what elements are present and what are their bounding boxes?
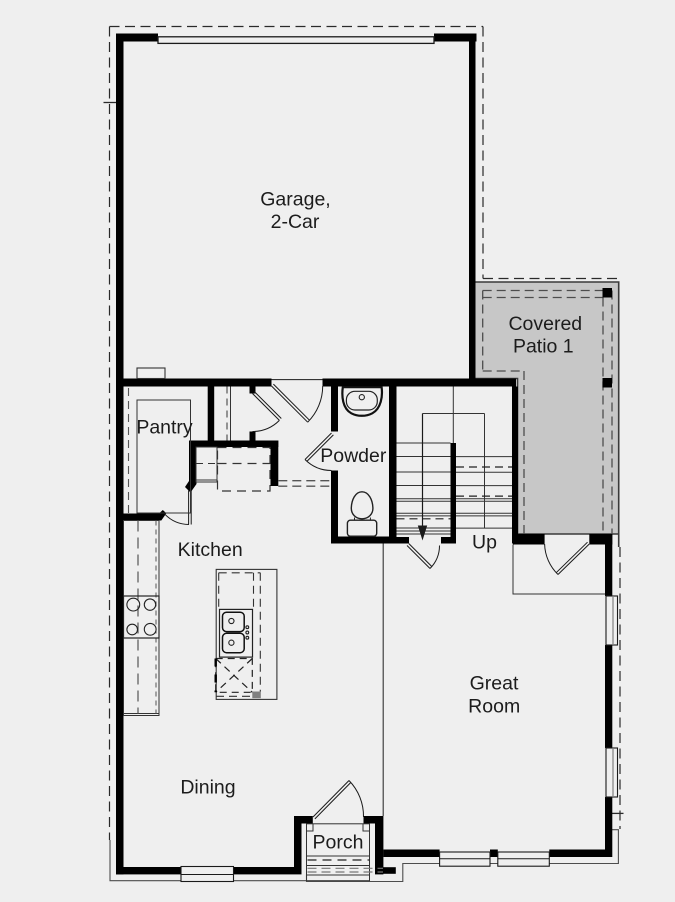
svg-text:Powder: Powder	[320, 445, 387, 467]
svg-text:Covered: Covered	[508, 313, 582, 335]
svg-text:Dining: Dining	[180, 777, 235, 799]
svg-text:Pantry: Pantry	[136, 417, 193, 439]
svg-text:Garage,: Garage,	[260, 189, 330, 211]
svg-text:Up: Up	[472, 532, 497, 554]
svg-text:Porch: Porch	[313, 832, 364, 854]
svg-text:Patio 1: Patio 1	[513, 336, 574, 358]
svg-text:2-Car: 2-Car	[271, 211, 320, 233]
svg-text:Room: Room	[468, 696, 520, 718]
svg-text:Great: Great	[470, 672, 519, 694]
svg-text:Kitchen: Kitchen	[178, 539, 243, 561]
